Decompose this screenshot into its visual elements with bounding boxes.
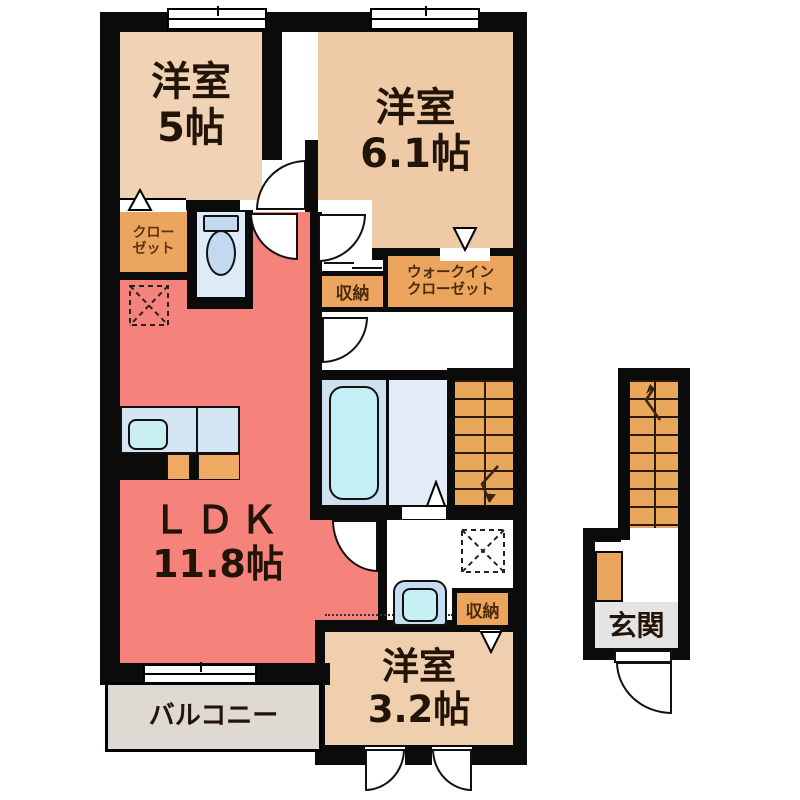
step-line xyxy=(595,538,621,542)
entrance-door-arc xyxy=(616,662,672,714)
bathtub-icon xyxy=(329,386,379,500)
ldk-label: ＬＤＫ 11.8帖 xyxy=(118,488,318,598)
closet-label-line2: ゼット xyxy=(133,241,175,257)
door-arc xyxy=(365,749,405,791)
wic-label-line1: ウォークイン xyxy=(407,265,494,282)
wall xyxy=(513,12,527,765)
wall xyxy=(310,370,447,380)
bedroom-3-2-label: 洋室 3.2帖 xyxy=(325,636,513,742)
window-line xyxy=(169,18,265,20)
door-arc xyxy=(322,317,368,363)
balcony-label-text: バルコニー xyxy=(149,702,278,732)
equipment-area-icon xyxy=(128,284,170,327)
bedroom-6-1-label: 洋室 6.1帖 xyxy=(318,66,513,196)
window-line xyxy=(372,18,478,20)
kitchen-cabinet xyxy=(198,454,240,480)
ldk-size: 11.8帖 xyxy=(152,543,284,587)
entrance-label-text: 玄関 xyxy=(608,610,664,642)
wall xyxy=(100,12,120,685)
sliding-door-line xyxy=(352,267,382,269)
walk-in-closet-label: ウォークイン クローゼット xyxy=(388,256,513,307)
wall xyxy=(305,140,318,212)
wall xyxy=(386,378,389,508)
kitchen-sink-icon xyxy=(128,419,168,450)
window-icon xyxy=(370,8,480,30)
stair-arrow-icon xyxy=(632,382,672,424)
closet-label-line1: クロー xyxy=(133,225,175,241)
bedroom-5-size: 5帖 xyxy=(157,105,225,151)
washbasin-icon xyxy=(402,588,438,622)
entrance-label: 玄関 xyxy=(595,604,678,648)
stair-arrow-icon xyxy=(468,462,508,507)
bedroom-5-name: 洋室 xyxy=(151,59,231,105)
storage-lower-label: 収納 xyxy=(457,593,508,625)
balcony-label: バルコニー xyxy=(110,692,317,742)
bedroom-3-2-name: 洋室 xyxy=(382,646,456,689)
sliding-door-line xyxy=(324,262,354,264)
washing-machine-area-icon xyxy=(460,528,506,574)
bedroom-3-2-size: 3.2帖 xyxy=(368,689,471,732)
wall xyxy=(262,12,282,160)
door-arc xyxy=(256,160,306,210)
storage-upper-label: 収納 xyxy=(322,276,383,307)
window-tick xyxy=(425,6,427,16)
kitchen-wall-return xyxy=(120,452,167,480)
window-icon xyxy=(167,8,267,30)
bath-door-opening xyxy=(402,507,446,519)
kitchen-wall-gap xyxy=(190,454,198,480)
door-direction-icon xyxy=(125,188,155,212)
door-direction-icon xyxy=(450,226,480,252)
bedroom-5-label: 洋室 5帖 xyxy=(120,40,262,170)
wall xyxy=(315,745,527,765)
kitchen-cabinet xyxy=(167,454,190,480)
floor-plan: クロー ゼット 収納 ウォークイン クローゼット 収納 xyxy=(0,0,800,800)
wall xyxy=(447,380,455,505)
bedroom-6-1-size: 6.1帖 xyxy=(360,131,471,177)
closet-label: クロー ゼット xyxy=(120,212,187,270)
entrance-wall xyxy=(583,528,595,660)
ldk-name: ＬＤＫ xyxy=(152,499,284,543)
window-tick xyxy=(200,662,202,672)
bedroom-6-1-name: 洋室 xyxy=(376,85,456,131)
entrance-wall xyxy=(618,368,630,530)
kitchen-counter-divider xyxy=(196,408,198,452)
window-line xyxy=(145,673,255,675)
toilet-icon xyxy=(206,230,236,276)
door-direction-icon xyxy=(424,480,448,508)
door-arc xyxy=(432,749,472,791)
entrance-wall xyxy=(678,368,690,660)
wall xyxy=(447,368,513,380)
shoe-cabinet xyxy=(595,551,623,602)
window-tick xyxy=(217,6,219,16)
door-arc xyxy=(318,214,366,262)
balcony-window-icon xyxy=(143,664,257,684)
wic-label-line2: クローゼット xyxy=(407,282,494,299)
